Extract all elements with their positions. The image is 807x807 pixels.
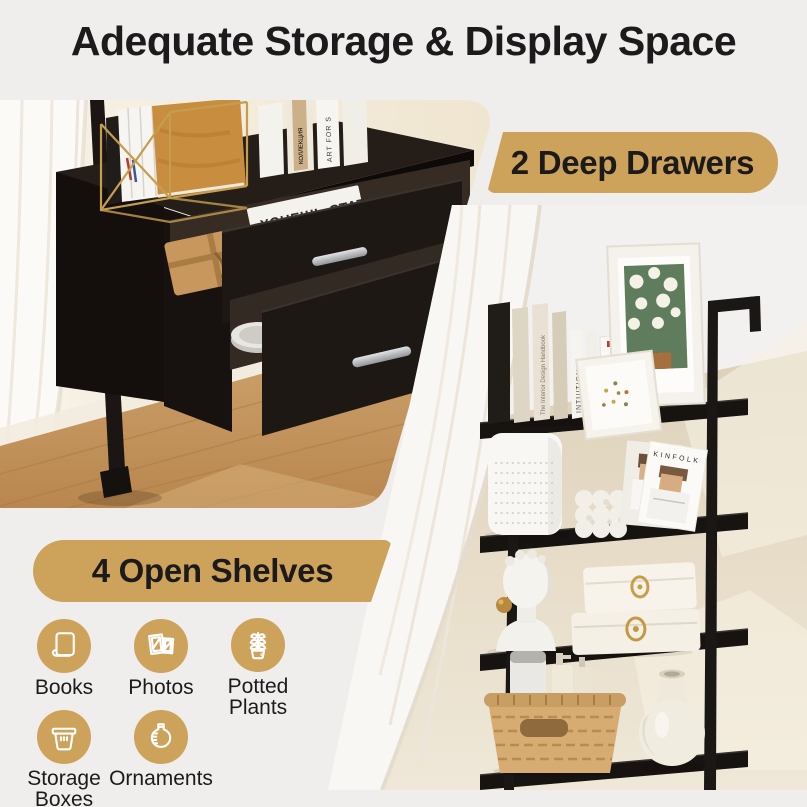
feature-label-line: Potted [188, 676, 328, 697]
feature-label-line: Plants [188, 697, 328, 718]
marketing-image: Adequate Storage & Display Space [0, 0, 807, 807]
bookend [488, 302, 510, 424]
photo-frames-icon [143, 628, 179, 664]
bubble-candle [575, 490, 627, 538]
gold-circle [37, 619, 91, 673]
wicker-basket [484, 693, 626, 773]
feature-storage-boxes: Storage Boxes [37, 710, 91, 764]
jewelry-box-lower [571, 609, 700, 655]
small-picture-frame [576, 351, 661, 440]
feature-label: Ornaments [91, 768, 231, 789]
gold-circle [37, 710, 91, 764]
badge-deep-drawers: 2 Deep Drawers [487, 132, 778, 193]
feature-label-line: Ornaments [91, 768, 231, 789]
jewelry-box-upper [583, 562, 697, 614]
badge-open-shelves: 4 Open Shelves [33, 540, 392, 602]
feature-label: Potted Plants [188, 676, 328, 718]
book-icon [46, 628, 82, 664]
shelves-photo-illustration: The Interior Design Handbook INTUITION T… [320, 205, 807, 790]
book-spine-collection: КОЛЛЕКЦИЯ [298, 127, 305, 164]
book-interior-design-spine: The Interior Design Handbook [541, 334, 547, 415]
feature-books: Books [37, 619, 91, 673]
feature-label-line: Boxes [0, 789, 134, 807]
gold-circle [231, 618, 285, 672]
ornament-vase-icon [143, 719, 179, 755]
air-purifier [488, 433, 562, 535]
feature-potted-plants: Potted Plants [231, 618, 285, 672]
suede-book [152, 100, 246, 198]
gold-circle [134, 619, 188, 673]
potted-plant-icon [240, 627, 276, 663]
photo-shelves: The Interior Design Handbook INTUITION T… [320, 205, 807, 790]
gold-circle [134, 710, 188, 764]
storage-basket-icon [46, 719, 82, 755]
feature-photos: Photos [134, 619, 188, 673]
feature-ornaments: Ornaments [134, 710, 188, 764]
kinfolk-magazine: KINFOLK [637, 441, 707, 531]
page-title: Adequate Storage & Display Space [0, 18, 807, 65]
